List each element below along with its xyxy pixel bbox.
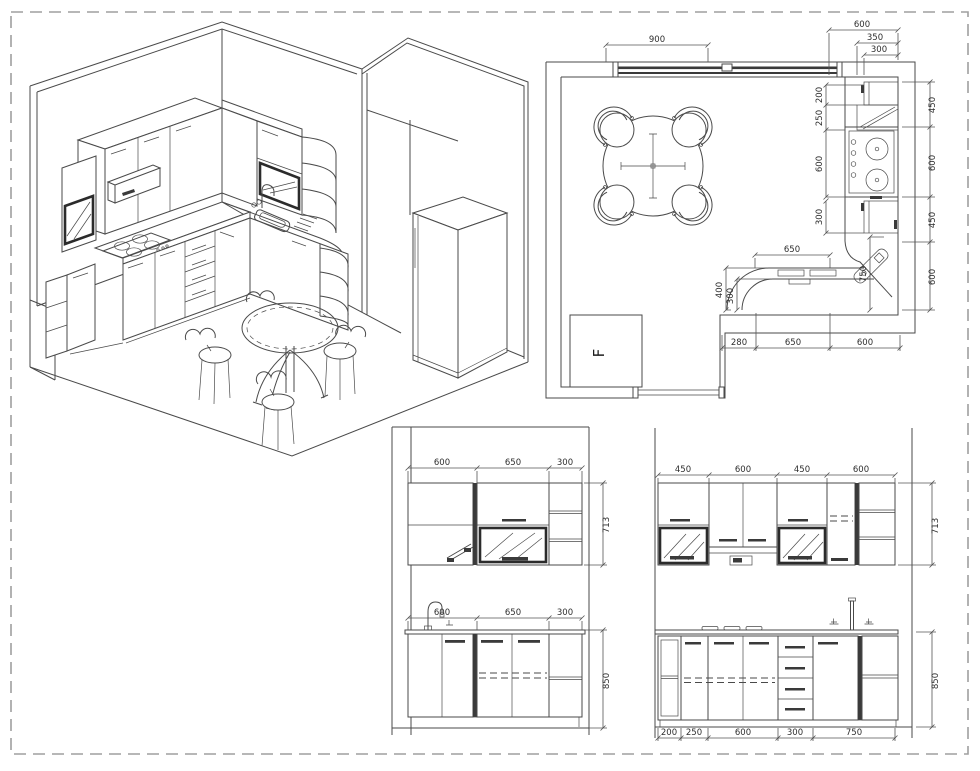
dimB-up-600b: 600: [853, 465, 869, 475]
plan-chair-nw: [585, 98, 643, 156]
plan-wall-cabinets: [857, 82, 898, 233]
dimA-lo-300: 300: [557, 608, 573, 618]
dimB-lo-250: 250: [686, 728, 702, 738]
dim-left-200: 200: [815, 87, 825, 103]
isometric-view: [10, 10, 540, 470]
dim-right-600b: 600: [928, 269, 938, 285]
dimB-up-450a: 450: [675, 465, 691, 475]
corner-panel: [473, 483, 477, 565]
dim-bottom-650: 650: [785, 338, 801, 348]
dimB-up-450b: 450: [794, 465, 810, 475]
corner-base-cabinet: [67, 264, 95, 351]
plinth: [660, 720, 896, 727]
table-top: [242, 303, 338, 353]
dimA-lo-650: 650: [505, 608, 521, 618]
plinth: [411, 717, 579, 727]
dimA-up-300: 300: [557, 458, 573, 468]
door-handle: [445, 640, 465, 643]
dim-right-450a: 450: [928, 97, 938, 113]
dimA-up-600: 600: [434, 458, 450, 468]
drawing-sheet: F 900 600 350 300: [0, 0, 980, 771]
glass-door-handle: [502, 557, 528, 561]
tap-handles: [830, 619, 874, 625]
corner-panel-base: [473, 634, 477, 717]
plan-door: [633, 387, 724, 398]
dim-left-600: 600: [815, 156, 825, 172]
dimA-713: 713: [602, 517, 612, 533]
elevB-counter-fittings: [655, 598, 898, 634]
base-end-shelves: [46, 275, 67, 358]
dimA-850: 850: [602, 673, 612, 689]
dim-depth-hood: 350: [867, 33, 883, 43]
floor-plan-view: F 900 600 350 300: [540, 15, 970, 415]
plan-fridge: F: [570, 315, 642, 387]
dim-left-250: 250: [815, 110, 825, 126]
elevB-base-cabinets: [658, 636, 898, 727]
elevA-upper-cabinets: [408, 483, 582, 565]
elevA-base-cabinets: [405, 630, 585, 727]
counter-item-1: [778, 270, 804, 276]
fridge-label: F: [590, 349, 608, 358]
dimB-lo-200: 200: [661, 728, 677, 738]
dim-left-300: 300: [815, 209, 825, 225]
chair-right: [324, 325, 366, 400]
dimA-lo-600: 600: [434, 608, 450, 618]
dimB-lo-750: 750: [846, 728, 862, 738]
elevB-upper-cabinets: [658, 483, 895, 565]
dim-corner-750: 750: [859, 266, 869, 282]
dim-window: 900: [649, 35, 665, 45]
dim-bottom-600: 600: [857, 338, 873, 348]
dim-curve-300: 300: [726, 288, 736, 304]
lift-door-handle: [502, 519, 526, 522]
corner-wall-cabinet: [222, 108, 257, 206]
dimB-lo-300: 300: [787, 728, 803, 738]
dim-depth-counter: 600: [854, 20, 870, 30]
elevation-front-view: 600 650 300 713 600 650 300 850: [385, 415, 635, 771]
dim-curve-400: 400: [715, 282, 725, 298]
dimB-850: 850: [931, 673, 941, 689]
tall-fridge-cabinet: [413, 197, 507, 378]
chair-left: [185, 328, 231, 404]
counter-item-2: [810, 270, 836, 276]
divider-panel: [855, 483, 859, 565]
countertop: [405, 630, 585, 634]
dim-right-450b: 450: [928, 212, 938, 228]
corner-open-shelves-upper: [302, 137, 336, 233]
dimB-lo-600: 600: [735, 728, 751, 738]
dim-right-600a: 600: [928, 155, 938, 171]
dim-depth-wallcab: 300: [871, 45, 887, 55]
shelf-unit: [859, 483, 895, 565]
divider-panel-base: [858, 636, 862, 720]
fridge-front-face: [413, 213, 458, 378]
plan-cooktop: [845, 127, 898, 197]
dimB-713: 713: [931, 518, 941, 534]
dim-counter-650: 650: [784, 245, 800, 255]
plan-chair-se: [662, 175, 720, 233]
elevation-side-view: 450 600 450 600 713 850 200 250 600 300 …: [640, 420, 980, 771]
plan-hood-diagonals: [860, 107, 898, 129]
plan-chair-ne: [662, 98, 720, 156]
tall-faucet: [851, 601, 854, 630]
dimA-up-650: 650: [505, 458, 521, 468]
plan-chair-sw: [585, 175, 643, 233]
plan-dimensions: 900 600 350 300 200 250 600 300 750 450 …: [604, 20, 939, 351]
dimB-up-600a: 600: [735, 465, 751, 475]
fridge-side-face: [458, 213, 507, 378]
open-shelf-unit: [549, 483, 582, 565]
plan-window: [613, 62, 842, 77]
base-open-shelf: [549, 634, 582, 717]
countertop: [655, 630, 898, 634]
counter-handle: [789, 279, 810, 284]
dim-bottom-280: 280: [731, 338, 747, 348]
